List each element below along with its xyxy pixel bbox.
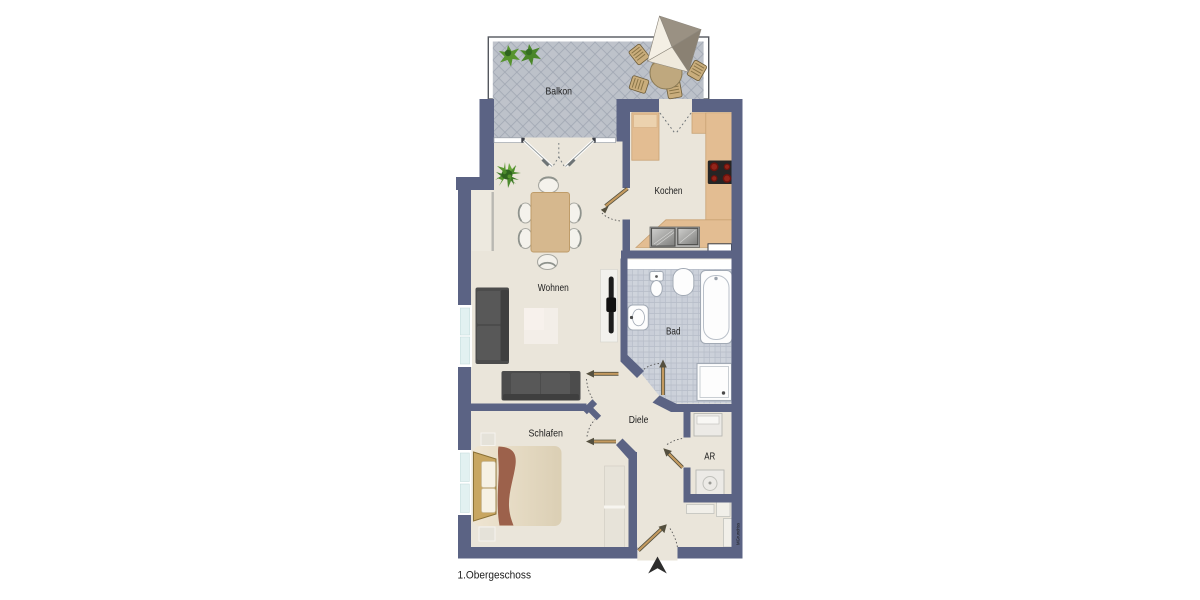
svg-text:Balkon: Balkon: [546, 86, 573, 98]
svg-text:AR: AR: [704, 451, 715, 463]
svg-text:Bad: Bad: [666, 326, 681, 338]
svg-text:1.Obergeschoss: 1.Obergeschoss: [458, 569, 532, 581]
svg-text:Diele: Diele: [629, 414, 649, 426]
svg-text:MGrundriss: MGrundriss: [736, 523, 741, 545]
svg-text:Wohnen: Wohnen: [538, 282, 569, 294]
svg-text:Schlafen: Schlafen: [529, 428, 564, 440]
svg-text:Kochen: Kochen: [655, 185, 683, 197]
